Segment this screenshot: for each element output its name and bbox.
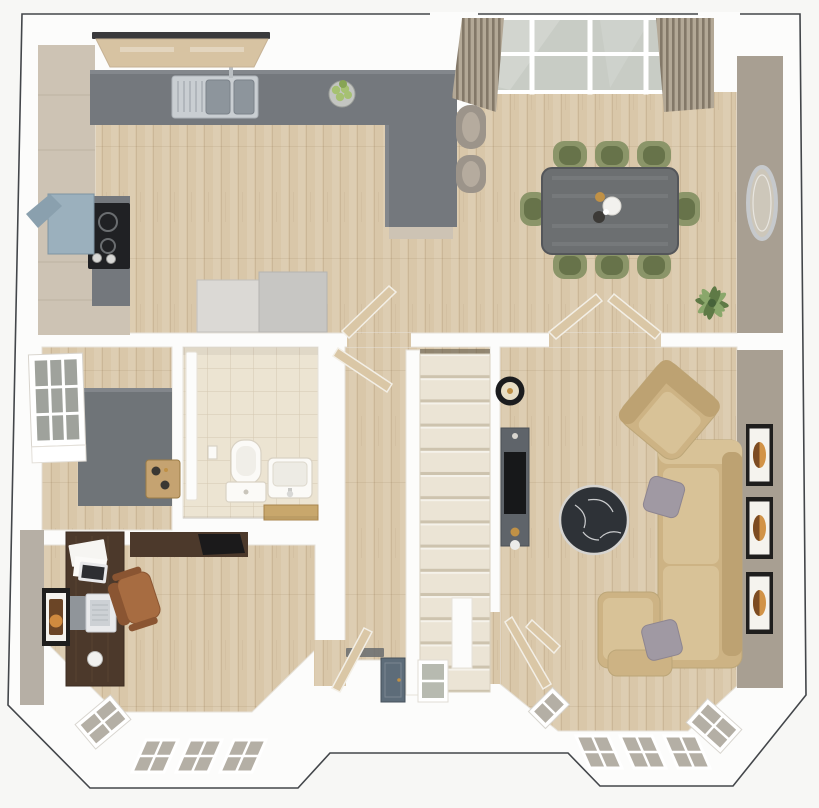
console-decor [510, 540, 520, 550]
peninsula-base [389, 227, 453, 239]
window-sill [32, 445, 87, 463]
doorway-hall [347, 333, 411, 347]
bottle [161, 481, 170, 490]
kitchen-cabinets [38, 45, 95, 335]
basin-bowl [273, 462, 307, 486]
appliance-unit [197, 280, 259, 332]
laptop-keyboard [90, 600, 110, 626]
curtain-right [656, 18, 714, 112]
doorway-dining-living [549, 333, 661, 347]
sink-bowl-left [206, 80, 230, 114]
peninsula-edge [385, 125, 389, 227]
dining-chair [637, 141, 671, 169]
toilet-roll-holder [208, 446, 217, 459]
hob-knob [93, 254, 102, 263]
window-sill [96, 39, 268, 67]
doorway-living [490, 612, 500, 684]
media-console [501, 428, 529, 550]
breakfast-peninsula [385, 125, 457, 227]
laptop-bag [198, 534, 245, 555]
wash-basin [268, 458, 312, 498]
coffee-table [560, 486, 628, 554]
stair-nosing-shadow [420, 349, 490, 354]
door-sidelight [418, 660, 448, 702]
wc-door-open [186, 352, 197, 500]
base-cabinet [92, 306, 130, 335]
flush-button [244, 490, 249, 495]
worktop-edge [90, 70, 457, 74]
window-lintel [92, 32, 270, 39]
appliance-unit [259, 272, 327, 332]
oval-mirror [748, 167, 776, 239]
stair-balustrade [406, 350, 420, 695]
wooden-tray [146, 460, 180, 498]
apple [339, 80, 347, 88]
laptop [68, 594, 116, 632]
front-door [381, 658, 405, 702]
wall-art-frame [746, 497, 773, 559]
floor-lamp [496, 377, 525, 406]
window-glass [35, 359, 80, 440]
dining-chair [595, 141, 629, 169]
dining-chair [553, 141, 587, 169]
study-side-wall [20, 530, 44, 705]
tv [504, 452, 526, 514]
bar-stool [456, 105, 486, 149]
fruit-bowl [329, 80, 355, 107]
bar-stool [456, 155, 486, 193]
laptop-screen [68, 596, 86, 630]
wall-art-frame [746, 572, 773, 634]
floor-plan-render [0, 0, 819, 808]
toilet [226, 440, 266, 502]
console-decor [511, 528, 520, 537]
bottle [152, 467, 161, 476]
apple [336, 93, 344, 101]
study-wall-frame [42, 588, 70, 646]
toilet-seat [236, 446, 256, 476]
wall-art-frame [746, 424, 773, 486]
tablet [78, 561, 108, 583]
dining-chair [595, 251, 629, 279]
sofa-back [722, 452, 742, 656]
utility-window [28, 353, 86, 463]
kitchen-window [92, 32, 270, 67]
floor-plan-canvas [0, 0, 819, 808]
dining-chair [553, 251, 587, 279]
kitchen-worktop [90, 70, 457, 125]
sink-bowl-right [234, 80, 254, 114]
vestibule-wall [452, 598, 472, 668]
door-handle [397, 678, 401, 682]
decor-sphere [88, 652, 103, 667]
apple [344, 91, 352, 99]
hob-knob [107, 255, 116, 264]
dining-chair [637, 251, 671, 279]
